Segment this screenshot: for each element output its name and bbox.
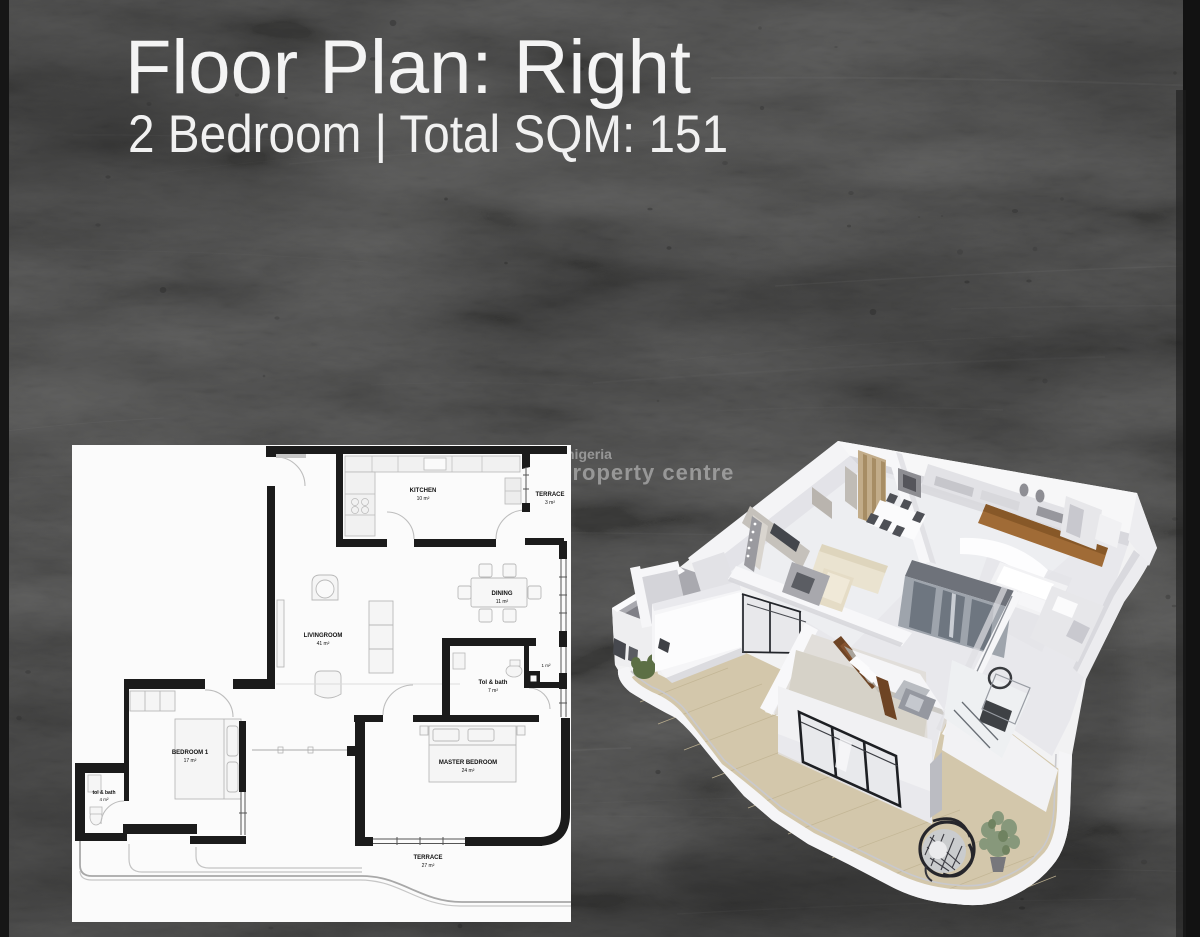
svg-text:7 m²: 7 m²: [488, 688, 498, 694]
svg-text:DINING: DINING: [492, 591, 513, 597]
svg-text:41 m²: 41 m²: [317, 641, 330, 647]
svg-text:KITCHEN: KITCHEN: [410, 488, 437, 494]
svg-text:27 m²: 27 m²: [422, 863, 435, 869]
svg-text:24 m²: 24 m²: [462, 768, 475, 774]
svg-text:TERRACE: TERRACE: [413, 855, 442, 861]
svg-text:3 m²: 3 m²: [545, 500, 555, 506]
svg-text:TERRACE: TERRACE: [535, 492, 564, 498]
svg-text:tol & bath: tol & bath: [92, 790, 115, 796]
svg-text:Tol & bath: Tol & bath: [479, 680, 508, 686]
svg-text:4 m²: 4 m²: [100, 797, 110, 802]
svg-text:10 m²: 10 m²: [417, 496, 430, 502]
svg-text:LIVINGROOM: LIVINGROOM: [304, 633, 343, 639]
svg-text:MASTER BEDROOM: MASTER BEDROOM: [439, 760, 497, 766]
svg-text:BEDROOM 1: BEDROOM 1: [172, 750, 209, 756]
svg-text:17 m²: 17 m²: [184, 758, 197, 764]
svg-text:11 m²: 11 m²: [496, 599, 509, 605]
svg-text:1 m²: 1 m²: [542, 663, 552, 668]
